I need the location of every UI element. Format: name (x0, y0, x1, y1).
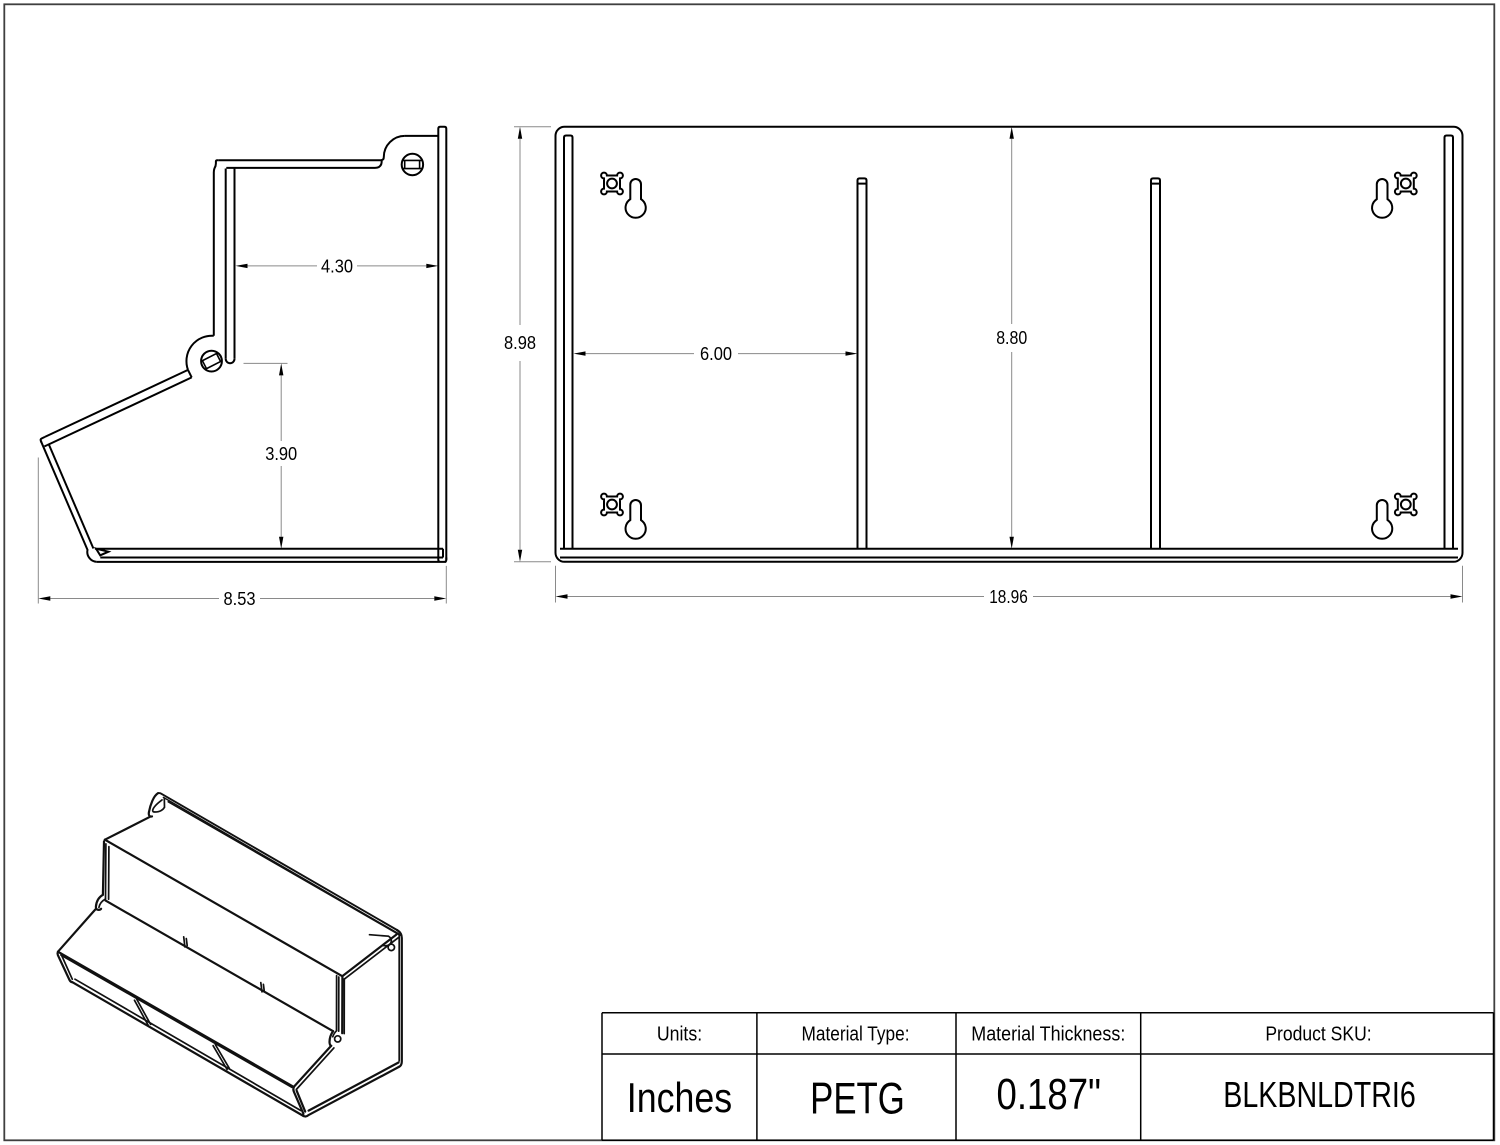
svg-text:Units:: Units: (657, 1023, 702, 1046)
svg-text:Product SKU:: Product SKU: (1265, 1023, 1371, 1046)
svg-text:Inches: Inches (627, 1074, 732, 1121)
svg-text:PETG: PETG (810, 1074, 905, 1123)
svg-text:BLKBNLDTRI6: BLKBNLDTRI6 (1223, 1074, 1416, 1115)
svg-text:8.53: 8.53 (224, 588, 256, 609)
svg-text:6.00: 6.00 (700, 343, 732, 364)
svg-text:8.80: 8.80 (996, 327, 1027, 348)
svg-text:18.96: 18.96 (989, 586, 1028, 607)
svg-text:8.98: 8.98 (504, 332, 536, 353)
svg-text:Material Thickness:: Material Thickness: (971, 1023, 1125, 1046)
svg-text:0.187": 0.187" (997, 1070, 1102, 1119)
svg-text:3.90: 3.90 (265, 443, 297, 464)
svg-text:4.30: 4.30 (321, 256, 353, 277)
svg-text:Material Type:: Material Type: (802, 1023, 910, 1046)
